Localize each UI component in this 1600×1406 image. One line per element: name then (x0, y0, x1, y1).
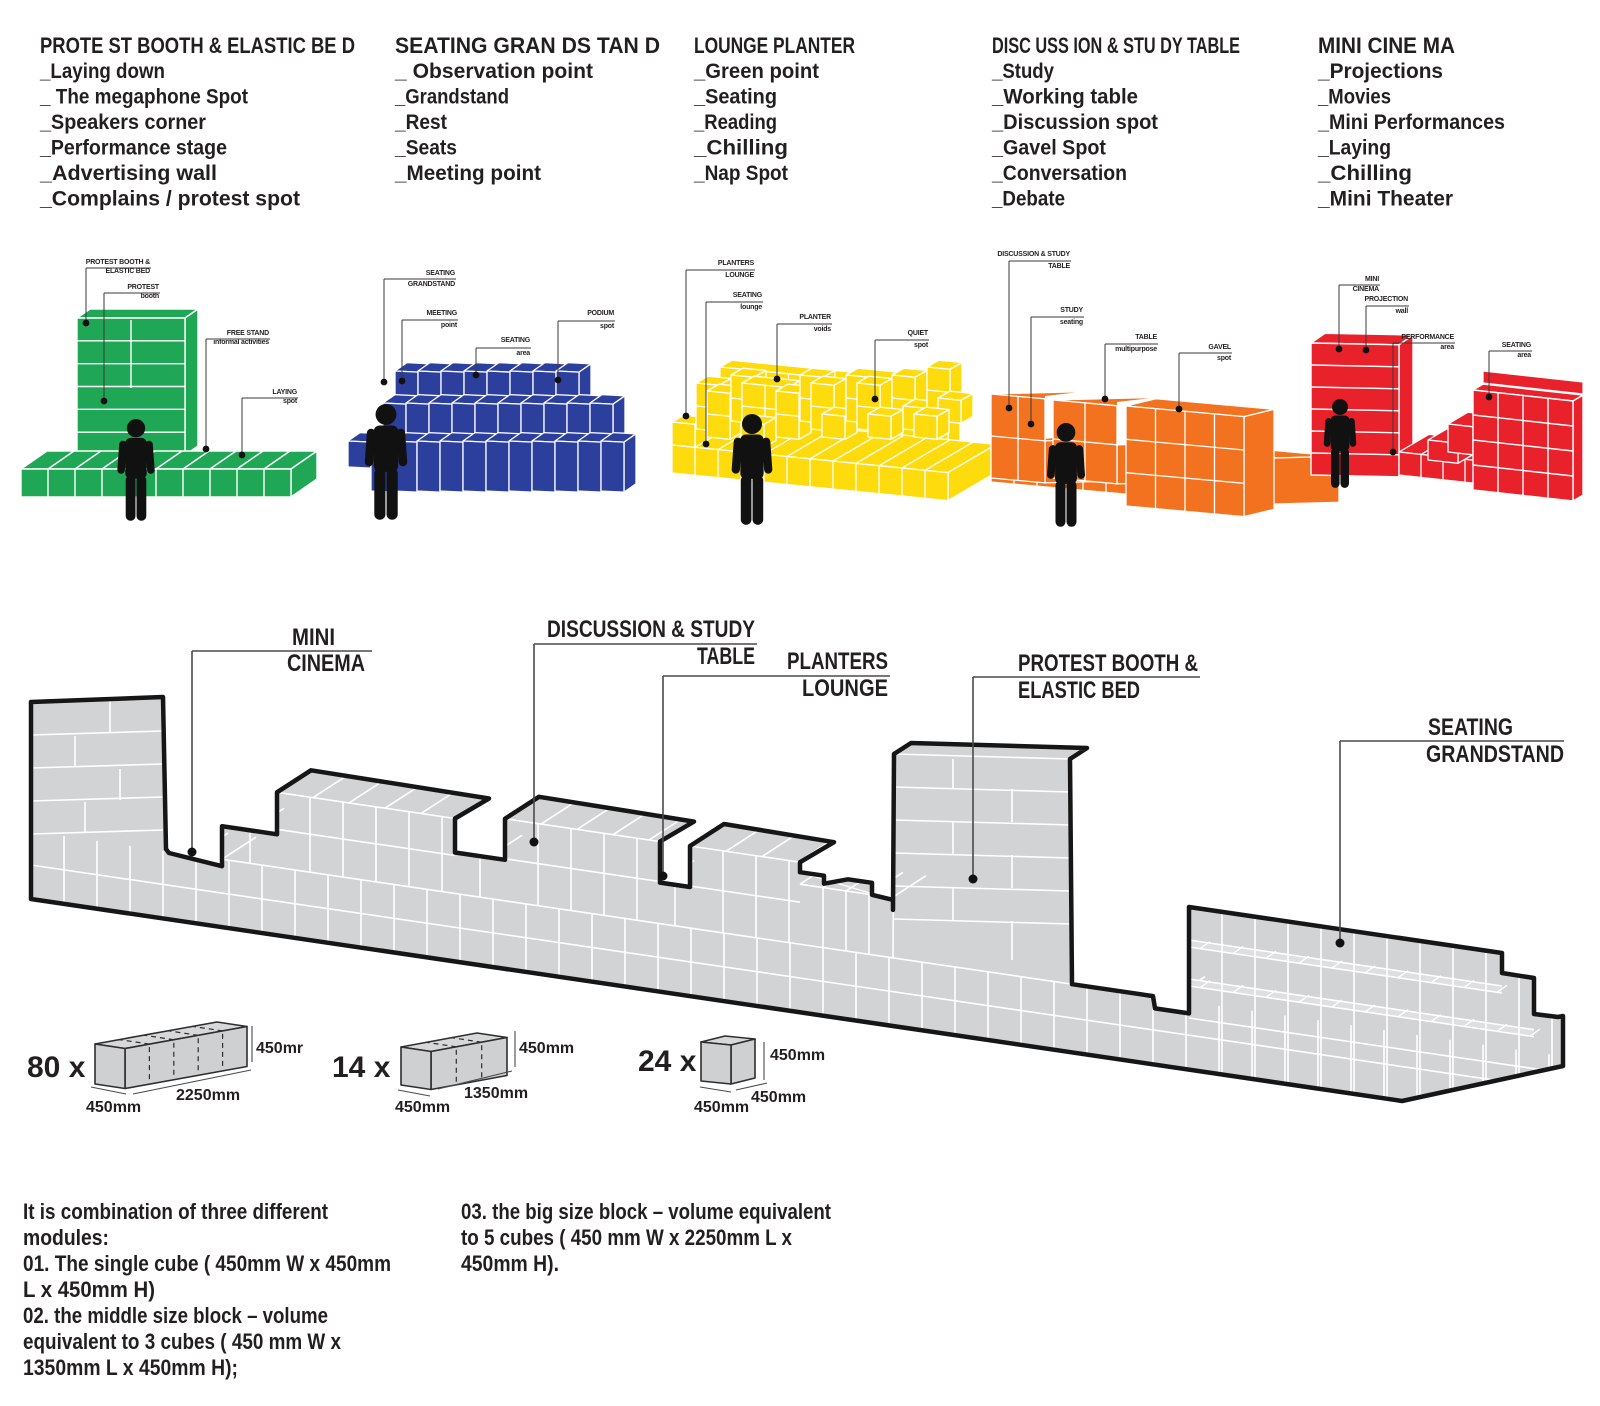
svg-text:_Meeting point: _Meeting point (394, 162, 541, 185)
svg-text:_Working table: _Working table (991, 86, 1138, 109)
svg-text:_Discussion spot: _Discussion spot (991, 111, 1158, 134)
svg-text:spot: spot (600, 323, 615, 330)
svg-text:spot: spot (283, 398, 298, 405)
svg-text:_Speakers corner: _Speakers corner (39, 111, 206, 134)
svg-text:multipurpose: multipurpose (1115, 346, 1157, 353)
svg-text:QUIET: QUIET (908, 330, 929, 337)
svg-text:to 5 cubes ( 450 mm W x 2250mm: to 5 cubes ( 450 mm W x 2250mm L x (461, 1225, 793, 1250)
svg-text:_Seats: _Seats (394, 137, 457, 160)
svg-text:spot: spot (914, 342, 929, 349)
svg-text:_Projections: _Projections (1317, 60, 1443, 83)
svg-text:_Laying: _Laying (1317, 137, 1391, 160)
svg-text:450mm: 450mm (694, 1099, 749, 1116)
svg-text:PROTEST: PROTEST (127, 284, 160, 291)
svg-text:area: area (1517, 352, 1531, 359)
svg-text:LAYING: LAYING (272, 389, 297, 396)
svg-text:MINI: MINI (292, 624, 335, 651)
svg-text:booth: booth (141, 293, 159, 300)
svg-text:PROTE ST BOOTH & ELASTIC BE D: PROTE ST BOOTH & ELASTIC BE D (40, 33, 355, 58)
svg-text:_Debate: _Debate (991, 188, 1065, 211)
svg-text:ELASTIC BED: ELASTIC BED (1018, 677, 1140, 704)
svg-text:450mm: 450mm (395, 1099, 450, 1116)
svg-text:_ The megaphone Spot: _ The megaphone Spot (39, 86, 248, 109)
svg-text:CINEMA: CINEMA (1353, 286, 1380, 293)
svg-text:1350mm: 1350mm (464, 1085, 528, 1102)
svg-text:L x 450mm H): L x 450mm H) (23, 1277, 155, 1302)
svg-text:2250mm: 2250mm (176, 1087, 240, 1104)
svg-text:STUDY: STUDY (1060, 307, 1083, 314)
svg-text:_Performance stage: _Performance stage (39, 137, 227, 160)
svg-text:PROJECTION: PROJECTION (1364, 296, 1408, 303)
svg-text:SEATING: SEATING (426, 270, 456, 277)
svg-text:_ Observation point: _ Observation point (394, 60, 593, 83)
svg-text:CINEMA: CINEMA (287, 650, 365, 677)
svg-text:_Mini Theater: _Mini Theater (1317, 188, 1453, 211)
svg-text:01. The single cube ( 450mm W: 01. The single cube ( 450mm W x 450mm (23, 1251, 391, 1276)
svg-text:wall: wall (1395, 308, 1409, 315)
svg-text:_Rest: _Rest (394, 111, 447, 134)
svg-text:GRANDSTAND: GRANDSTAND (408, 281, 455, 288)
svg-text:LOUNGE: LOUNGE (725, 272, 754, 279)
svg-text:SEATING: SEATING (501, 337, 531, 344)
svg-text:450mm: 450mm (86, 1099, 141, 1116)
svg-text:PLANTERS: PLANTERS (718, 260, 755, 267)
svg-text:PLANTER: PLANTER (799, 314, 831, 321)
svg-text:450mr: 450mr (256, 1040, 303, 1057)
svg-text:_Green point: _Green point (693, 60, 819, 83)
svg-text:_Nap Spot: _Nap Spot (693, 162, 788, 185)
svg-text:spot: spot (1217, 355, 1232, 362)
svg-text:_Complains / protest spot: _Complains / protest spot (39, 188, 300, 211)
svg-text:area: area (516, 350, 530, 357)
svg-text:TABLE: TABLE (1135, 334, 1157, 341)
svg-text:_Mini Performances: _Mini Performances (1317, 111, 1505, 134)
svg-text:modules:: modules: (23, 1225, 109, 1250)
svg-text:point: point (441, 322, 458, 329)
svg-text:PROTEST BOOTH &: PROTEST BOOTH & (1018, 650, 1198, 677)
svg-text:_Grandstand: _Grandstand (394, 86, 509, 109)
svg-text:450mm: 450mm (770, 1047, 825, 1064)
svg-text:24 x: 24 x (638, 1045, 697, 1078)
svg-text:informal activities: informal activities (213, 339, 269, 346)
svg-text:03. the big size block – volum: 03. the big size block – volume equivale… (461, 1199, 832, 1224)
svg-text:450mm: 450mm (519, 1040, 574, 1057)
svg-text:SEATING: SEATING (1502, 342, 1532, 349)
svg-text:DISCUSSION & STUDY: DISCUSSION & STUDY (547, 616, 755, 643)
svg-text:GRANDSTAND: GRANDSTAND (1426, 741, 1564, 768)
svg-text:LOUNGE PLANTER: LOUNGE PLANTER (694, 33, 855, 58)
svg-text:voids: voids (814, 326, 832, 333)
svg-text:_Movies: _Movies (1317, 86, 1391, 109)
svg-text:MINI CINE MA: MINI CINE MA (1318, 33, 1455, 58)
svg-text:14 x: 14 x (332, 1051, 391, 1084)
svg-text:02. the middle size block – vo: 02. the middle size block – volume (23, 1303, 328, 1328)
svg-text:MEETING: MEETING (427, 310, 458, 317)
svg-text:TABLE: TABLE (697, 643, 755, 670)
svg-text:_Conversation: _Conversation (991, 162, 1127, 185)
svg-text:GAVEL: GAVEL (1208, 344, 1232, 351)
svg-text:equivalent to 3 cubes ( 450 mm: equivalent to 3 cubes ( 450 mm W x (23, 1329, 342, 1354)
svg-text:PROTEST BOOTH &: PROTEST BOOTH & (86, 259, 150, 266)
svg-text:_Reading: _Reading (693, 111, 777, 134)
svg-text:_Laying down: _Laying down (39, 60, 165, 83)
svg-text:PERFORMANCE: PERFORMANCE (1401, 334, 1454, 341)
svg-text:DISC USS ION & STU DY TABLE: DISC USS ION & STU DY TABLE (992, 33, 1240, 58)
svg-text:seating: seating (1060, 319, 1083, 326)
svg-text:SEATING GRAN DS TAN D: SEATING GRAN DS TAN D (395, 33, 660, 58)
svg-text:It is combination of three dif: It is combination of three different (23, 1199, 329, 1224)
svg-text:SEATING: SEATING (733, 292, 763, 299)
svg-text:450mm H).: 450mm H). (461, 1251, 559, 1276)
svg-text:PODIUM: PODIUM (587, 310, 614, 317)
svg-text:MINI: MINI (1365, 276, 1379, 283)
svg-text:80 x: 80 x (27, 1051, 86, 1084)
svg-text:_Seating: _Seating (693, 86, 777, 109)
svg-text:_Chilling: _Chilling (693, 137, 788, 160)
svg-text:1350mm L x 450mm H);: 1350mm L x 450mm H); (23, 1355, 238, 1380)
svg-text:FREE STAND: FREE STAND (227, 330, 269, 337)
svg-text:lounge: lounge (740, 304, 762, 311)
svg-text:TABLE: TABLE (1048, 263, 1070, 270)
svg-text:_Chilling: _Chilling (1317, 162, 1412, 185)
svg-text:DISCUSSION & STUDY: DISCUSSION & STUDY (997, 251, 1070, 258)
svg-text:area: area (1440, 344, 1454, 351)
svg-text:SEATING: SEATING (1428, 714, 1513, 741)
svg-text:_Advertising wall: _Advertising wall (39, 162, 217, 185)
svg-text:_Study: _Study (991, 60, 1054, 83)
svg-text:LOUNGE: LOUNGE (802, 675, 888, 702)
svg-text:450mm: 450mm (751, 1089, 806, 1106)
svg-text:PLANTERS: PLANTERS (787, 648, 888, 675)
svg-text:_Gavel Spot: _Gavel Spot (991, 137, 1106, 160)
svg-text:ELASTIC BED: ELASTIC BED (106, 268, 151, 275)
